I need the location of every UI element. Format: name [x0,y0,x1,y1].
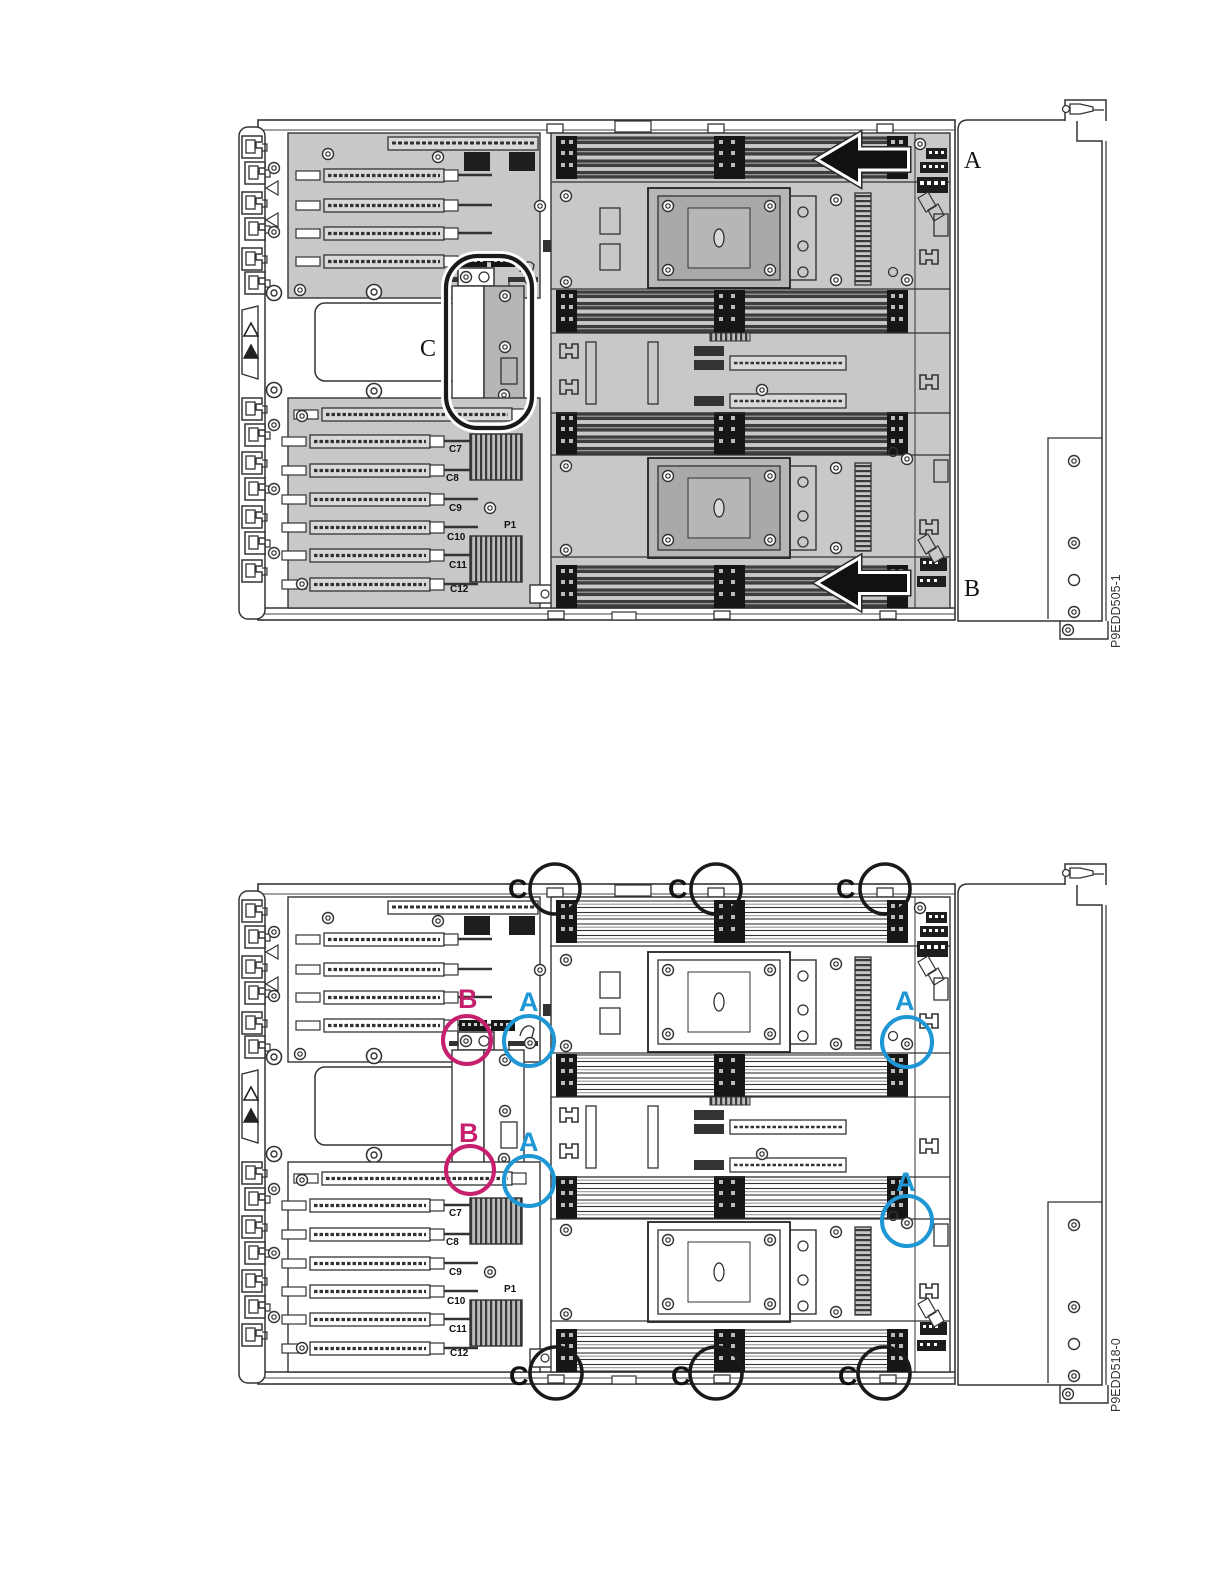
svg-text:A: A [519,987,539,1017]
svg-text:C: C [836,874,856,904]
svg-text:C: C [838,1361,858,1391]
svg-text:P9EDD518-0: P9EDD518-0 [1109,1338,1123,1412]
svg-text:B: B [964,576,980,602]
svg-text:C: C [668,874,688,904]
svg-text:P9EDD505-1: P9EDD505-1 [1109,574,1123,648]
svg-text:C: C [420,336,436,362]
svg-text:A: A [896,1167,916,1197]
svg-text:B: B [459,1118,479,1148]
svg-text:A: A [895,986,915,1016]
svg-text:C: C [508,874,528,904]
svg-text:A: A [964,148,982,174]
svg-text:B: B [458,984,478,1014]
svg-text:C: C [509,1361,529,1391]
svg-text:C: C [671,1361,691,1391]
svg-text:A: A [519,1127,539,1157]
